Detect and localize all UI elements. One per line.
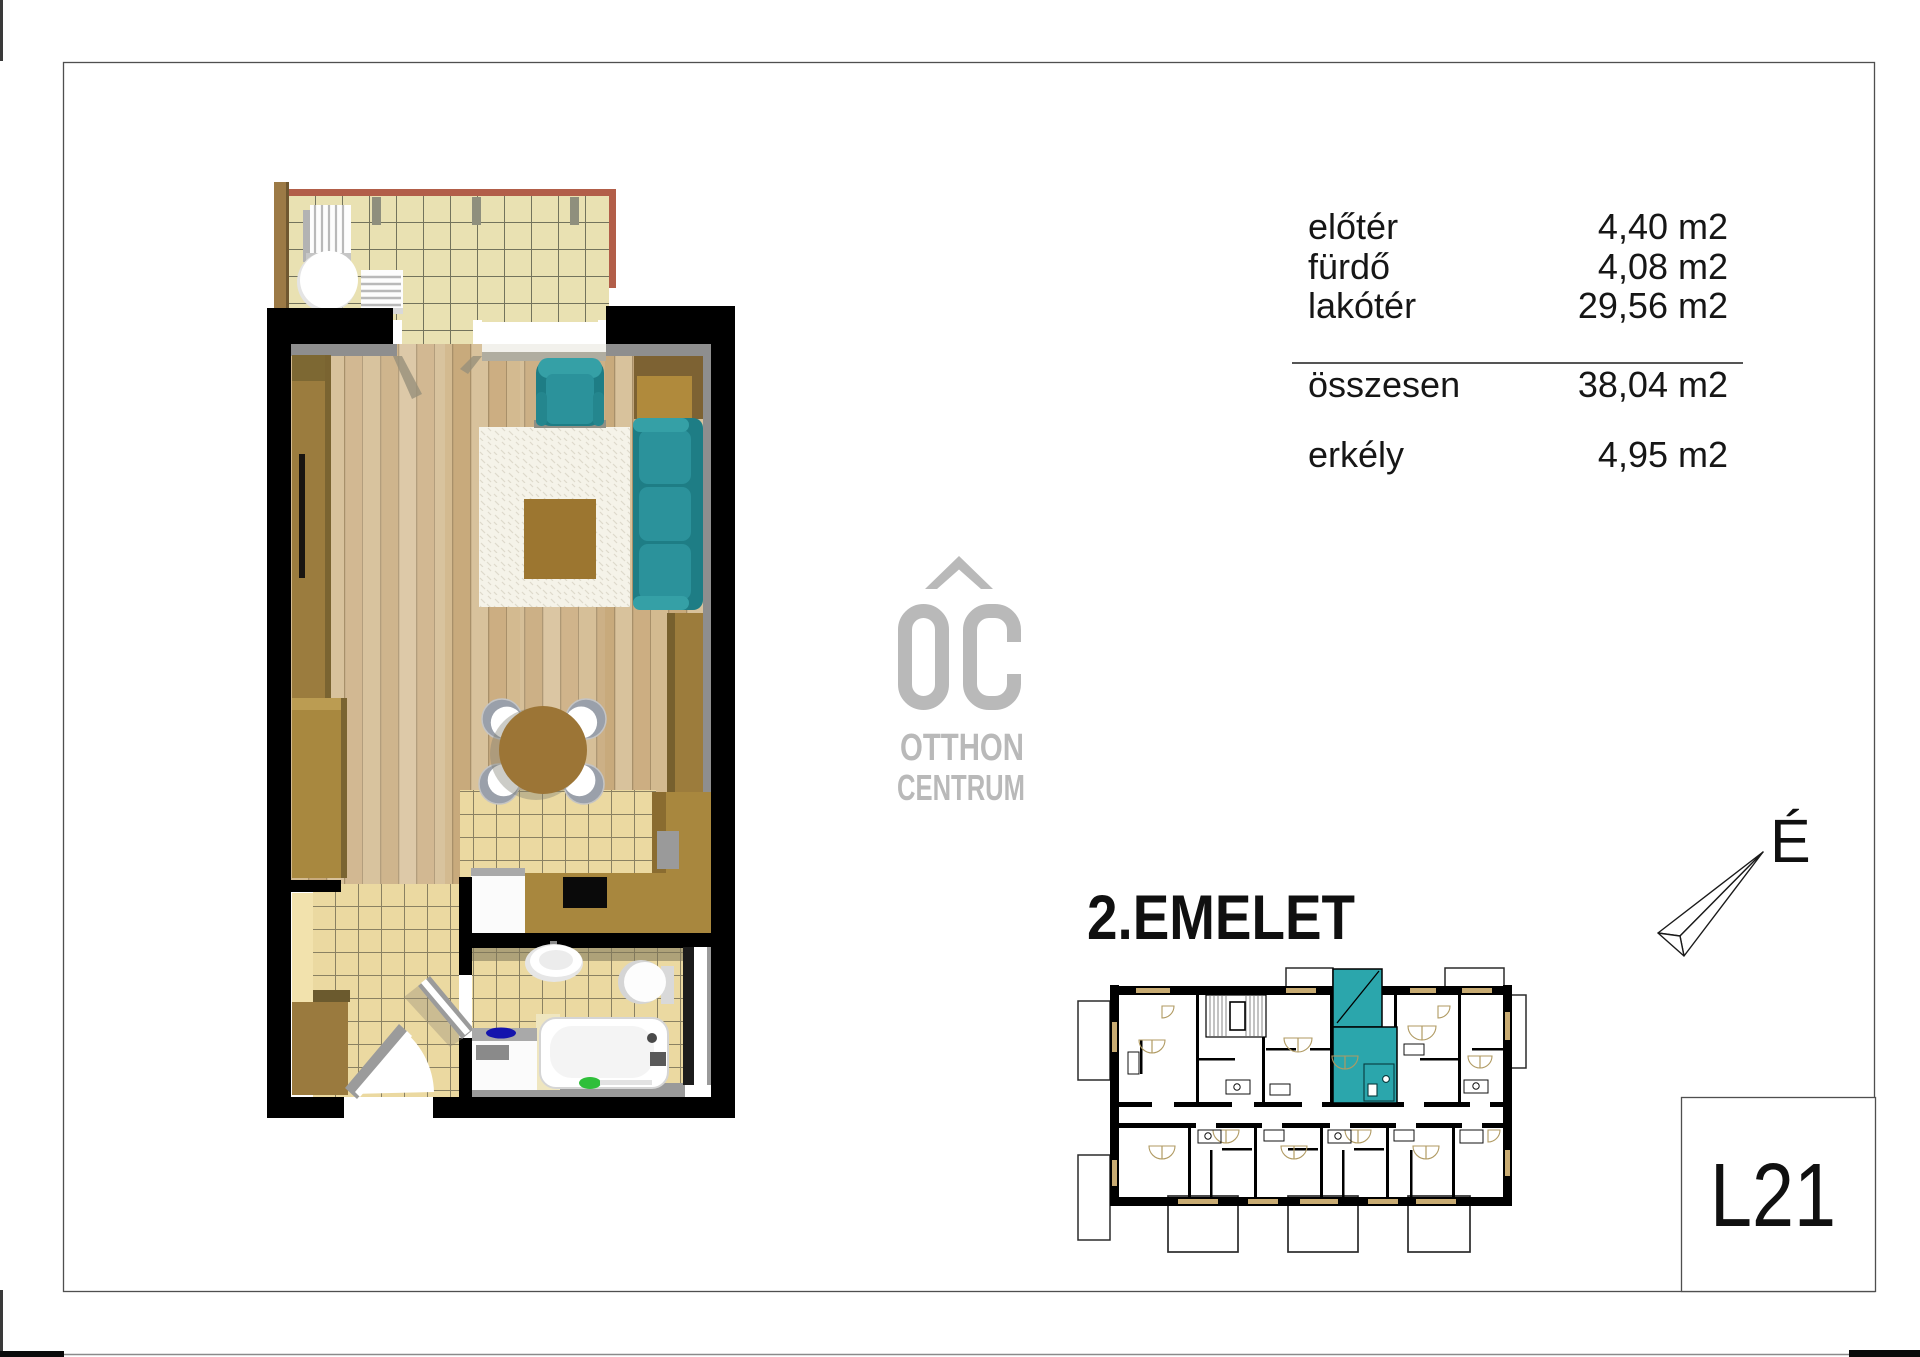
svg-text:2.EMELET: 2.EMELET xyxy=(1087,883,1355,953)
svg-text:erkély: erkély xyxy=(1308,434,1404,475)
svg-text:előtér: előtér xyxy=(1308,206,1398,247)
svg-text:fürdő: fürdő xyxy=(1308,246,1390,287)
svg-text:38,04 m2: 38,04 m2 xyxy=(1578,364,1728,405)
svg-text:összesen: összesen xyxy=(1308,364,1460,405)
svg-text:L21: L21 xyxy=(1710,1146,1836,1246)
svg-text:29,56 m2: 29,56 m2 xyxy=(1578,285,1728,326)
svg-text:4,95 m2: 4,95 m2 xyxy=(1598,434,1728,475)
svg-text:CENTRUM: CENTRUM xyxy=(897,767,1025,808)
svg-text:É: É xyxy=(1770,807,1811,875)
svg-text:lakótér: lakótér xyxy=(1308,285,1416,326)
svg-text:4,08 m2: 4,08 m2 xyxy=(1598,246,1728,287)
svg-text:OTTHON: OTTHON xyxy=(900,727,1024,769)
svg-text:4,40 m2: 4,40 m2 xyxy=(1598,206,1728,247)
